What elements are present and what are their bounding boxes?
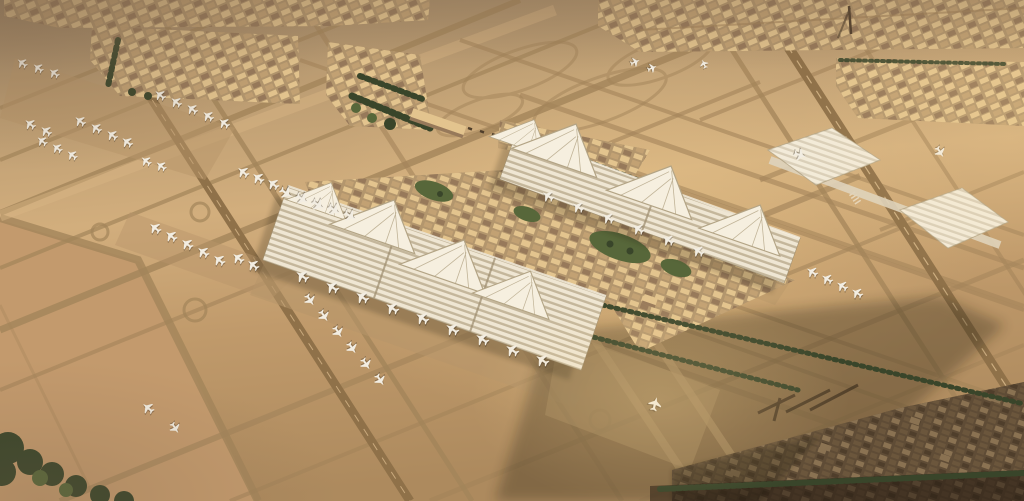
render-canvas bbox=[0, 0, 1024, 501]
airport-aerial-render bbox=[0, 0, 1024, 501]
